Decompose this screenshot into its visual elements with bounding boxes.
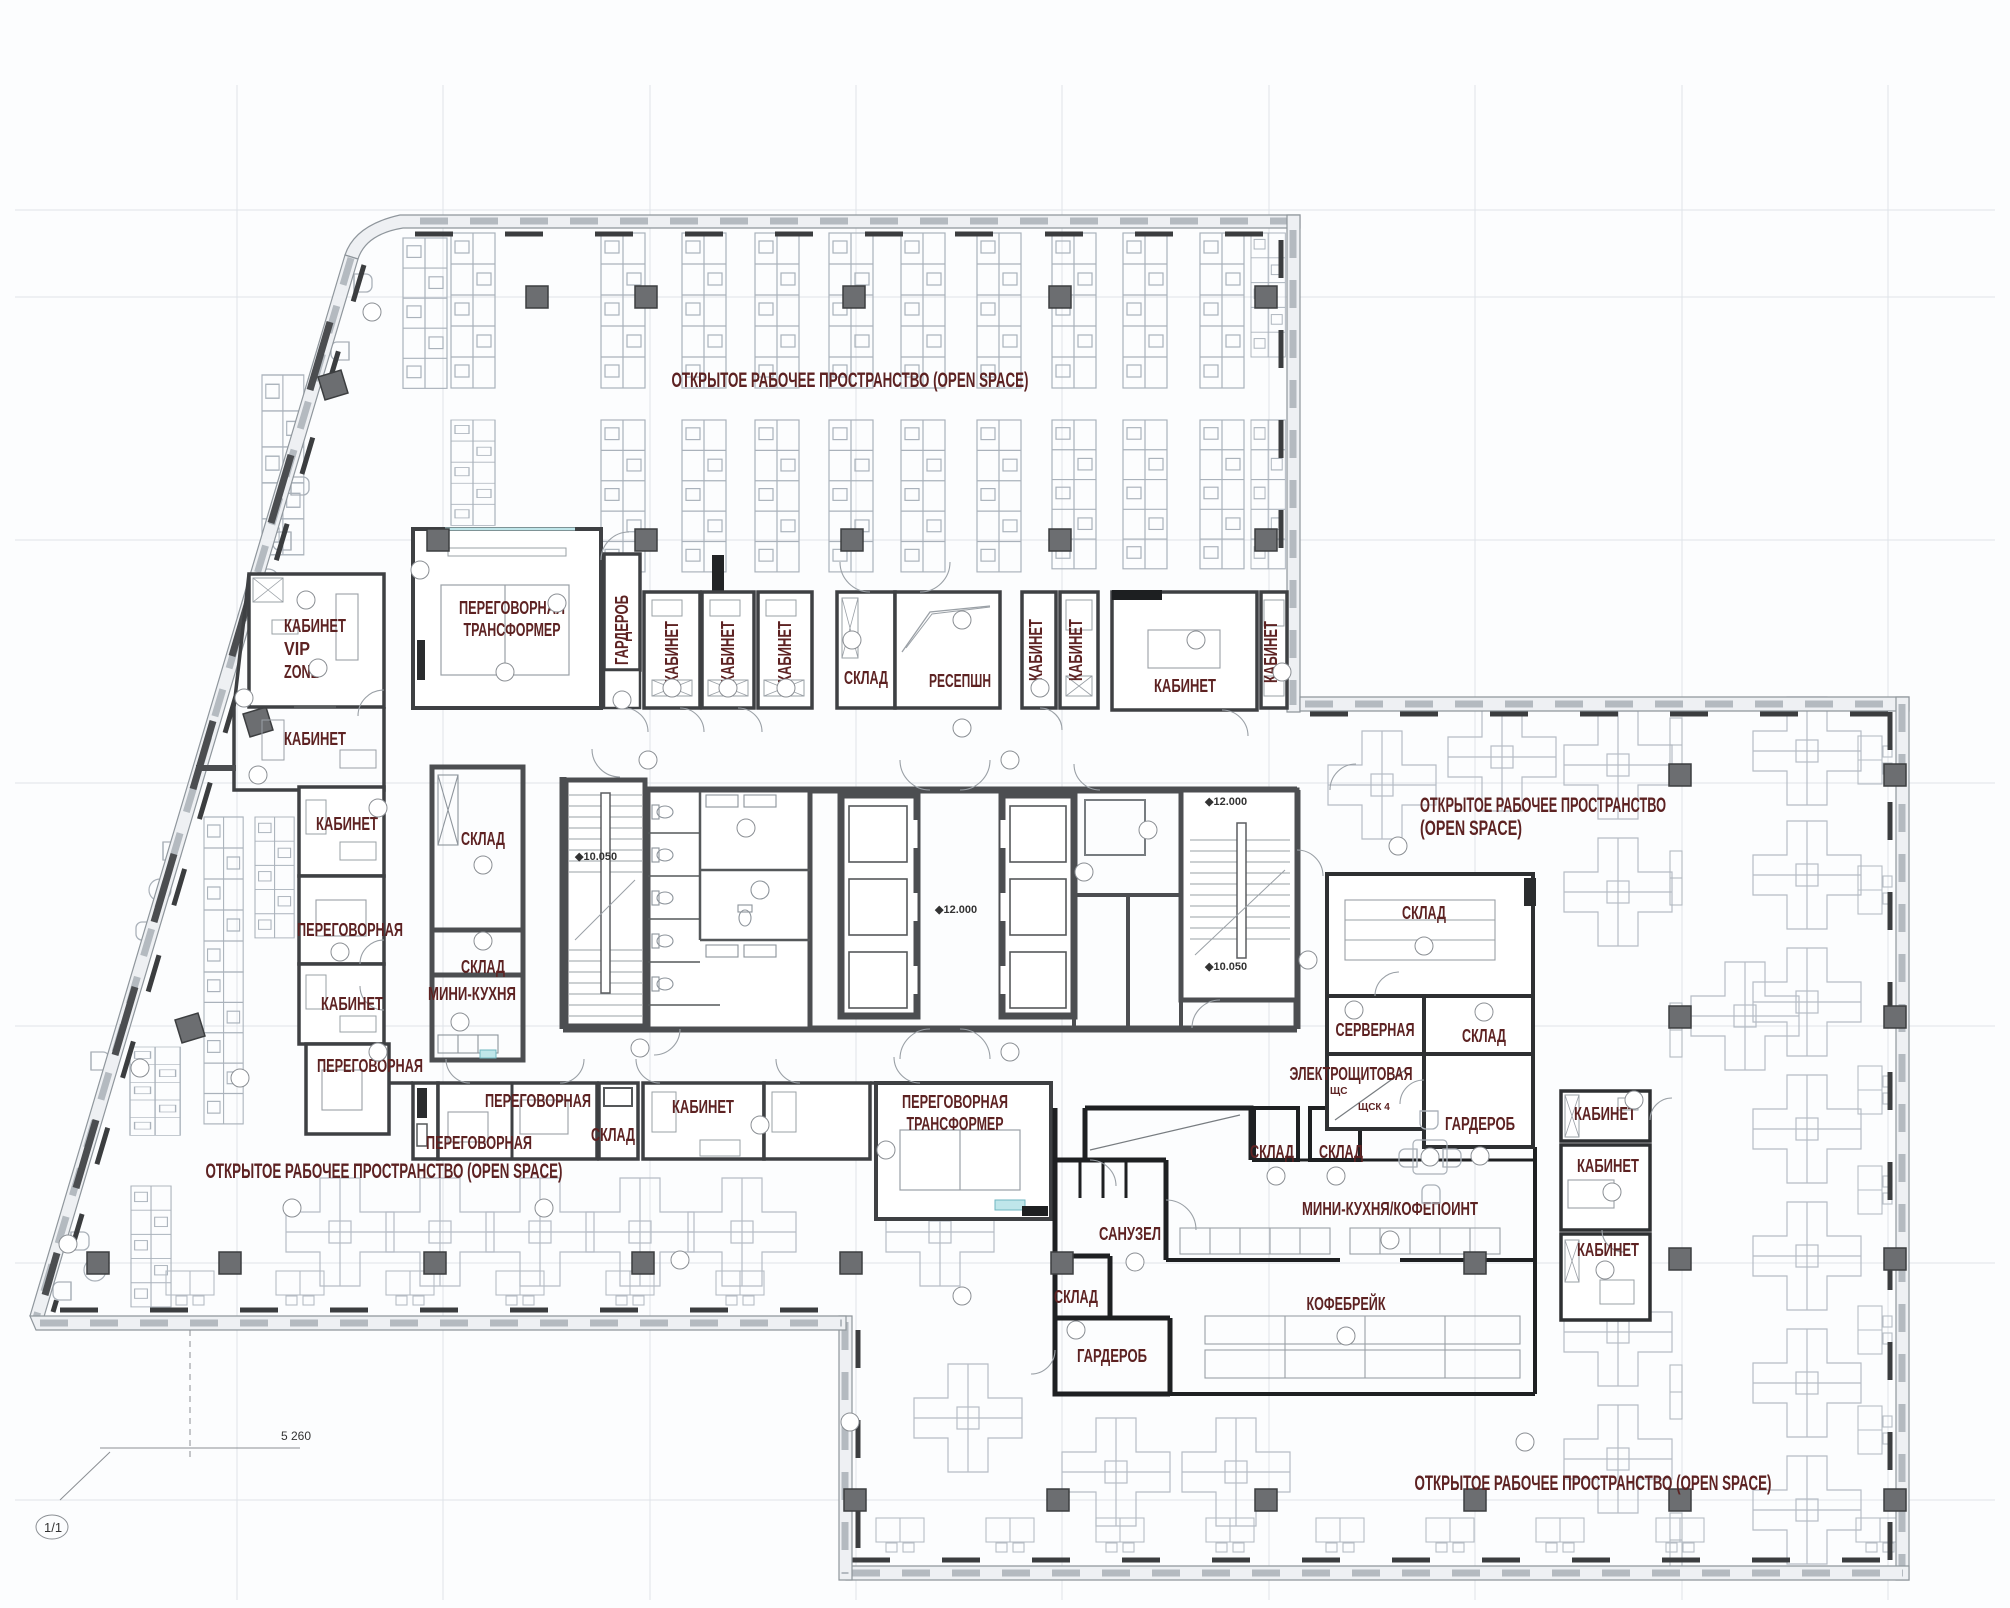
svg-text:◆12.000: ◆12.000 <box>934 904 977 916</box>
svg-text:(OPEN SPACE): (OPEN SPACE) <box>1420 817 1522 840</box>
svg-text:ЭЛЕКТРОЩИТОВАЯ: ЭЛЕКТРОЩИТОВАЯ <box>1290 1064 1413 1084</box>
svg-text:КАБИНЕТ: КАБИНЕТ <box>321 994 383 1014</box>
svg-text:КАБИНЕТ: КАБИНЕТ <box>1026 619 1046 681</box>
svg-text:СКЛАД: СКЛАД <box>1319 1142 1363 1162</box>
svg-text:МИНИ-КУХНЯ/КОФЕПОИНТ: МИНИ-КУХНЯ/КОФЕПОИНТ <box>1302 1199 1478 1219</box>
svg-text:ТРАНСФОРМЕР: ТРАНСФОРМЕР <box>907 1114 1004 1134</box>
svg-text:5 260: 5 260 <box>281 1429 311 1443</box>
svg-text:ГАРДЕРОБ: ГАРДЕРОБ <box>1445 1114 1515 1134</box>
svg-text:КАБИНЕТ: КАБИНЕТ <box>1154 676 1216 696</box>
svg-text:ОТКРЫТОЕ РАБОЧЕЕ ПРОСТРАНСТВО: ОТКРЫТОЕ РАБОЧЕЕ ПРОСТРАНСТВО (OPEN SPAC… <box>1415 1472 1772 1495</box>
svg-text:КАБИНЕТ: КАБИНЕТ <box>662 621 682 683</box>
svg-text:ПЕРЕГОВОРНАЯ: ПЕРЕГОВОРНАЯ <box>426 1133 532 1153</box>
svg-text:КАБИНЕТ: КАБИНЕТ <box>1577 1156 1639 1176</box>
svg-text:КАБИНЕТ: КАБИНЕТ <box>316 814 378 834</box>
svg-text:КАБИНЕТ: КАБИНЕТ <box>284 729 346 749</box>
svg-text:КАБИНЕТ: КАБИНЕТ <box>1574 1104 1636 1124</box>
svg-text:ЩСК 4: ЩСК 4 <box>1358 1102 1390 1113</box>
svg-text:СКЛАД: СКЛАД <box>461 957 505 977</box>
svg-text:КАБИНЕТ: КАБИНЕТ <box>718 621 738 683</box>
svg-text:VIP: VIP <box>284 639 310 659</box>
svg-text:ПЕРЕГОВОРНАЯ: ПЕРЕГОВОРНАЯ <box>485 1091 591 1111</box>
svg-text:СЕРВЕРНАЯ: СЕРВЕРНАЯ <box>1336 1020 1415 1040</box>
svg-text:ПЕРЕГОВОРНАЯ: ПЕРЕГОВОРНАЯ <box>297 920 403 940</box>
svg-text:КАБИНЕТ: КАБИНЕТ <box>672 1097 734 1117</box>
svg-text:КАБИНЕТ: КАБИНЕТ <box>775 621 795 683</box>
svg-text:ПЕРЕГОВОРНАЯ: ПЕРЕГОВОРНАЯ <box>317 1056 423 1076</box>
svg-text:КАБИНЕТ: КАБИНЕТ <box>1066 619 1086 681</box>
svg-text:СКЛАД: СКЛАД <box>1462 1026 1506 1046</box>
svg-text:ТРАНСФОРМЕР: ТРАНСФОРМЕР <box>464 620 561 640</box>
svg-text:ГАРДЕРОБ: ГАРДЕРОБ <box>1077 1346 1147 1366</box>
svg-text:◆12.000: ◆12.000 <box>1204 796 1247 808</box>
svg-text:ГАРДЕРОБ: ГАРДЕРОБ <box>612 595 632 665</box>
svg-text:◆10.050: ◆10.050 <box>574 851 617 863</box>
svg-text:ПЕРЕГОВОРНАЯ: ПЕРЕГОВОРНАЯ <box>902 1092 1008 1112</box>
svg-text:ЩС: ЩС <box>1330 1086 1347 1097</box>
svg-text:КАБИНЕТ: КАБИНЕТ <box>284 616 346 636</box>
svg-text:ОТКРЫТОЕ РАБОЧЕЕ ПРОСТРАНСТВО: ОТКРЫТОЕ РАБОЧЕЕ ПРОСТРАНСТВО (OPEN SPAC… <box>672 369 1029 392</box>
svg-text:ОТКРЫТОЕ РАБОЧЕЕ ПРОСТРАНСТВО: ОТКРЫТОЕ РАБОЧЕЕ ПРОСТРАНСТВО (OPEN SPAC… <box>206 1160 563 1183</box>
svg-text:СКЛАД: СКЛАД <box>1250 1142 1294 1162</box>
svg-text:СКЛАД: СКЛАД <box>591 1125 635 1145</box>
svg-text:СКЛАД: СКЛАД <box>1402 903 1446 923</box>
svg-text:ОТКРЫТОЕ РАБОЧЕЕ ПРОСТРАНСТВО: ОТКРЫТОЕ РАБОЧЕЕ ПРОСТРАНСТВО <box>1420 794 1666 817</box>
svg-text:КОФЕБРЕЙК: КОФЕБРЕЙК <box>1307 1293 1387 1314</box>
svg-text:РЕСЕПШН: РЕСЕПШН <box>929 671 991 691</box>
svg-text:СКЛАД: СКЛАД <box>844 668 888 688</box>
svg-text:1/1: 1/1 <box>44 1520 62 1535</box>
svg-text:САНУЗЕЛ: САНУЗЕЛ <box>1099 1224 1161 1244</box>
svg-text:КАБИНЕТ: КАБИНЕТ <box>1577 1240 1639 1260</box>
svg-text:МИНИ-КУХНЯ: МИНИ-КУХНЯ <box>428 984 516 1004</box>
svg-text:СКЛАД: СКЛАД <box>461 829 505 849</box>
svg-text:СКЛАД: СКЛАД <box>1054 1287 1098 1307</box>
svg-text:◆10.050: ◆10.050 <box>1204 961 1247 973</box>
